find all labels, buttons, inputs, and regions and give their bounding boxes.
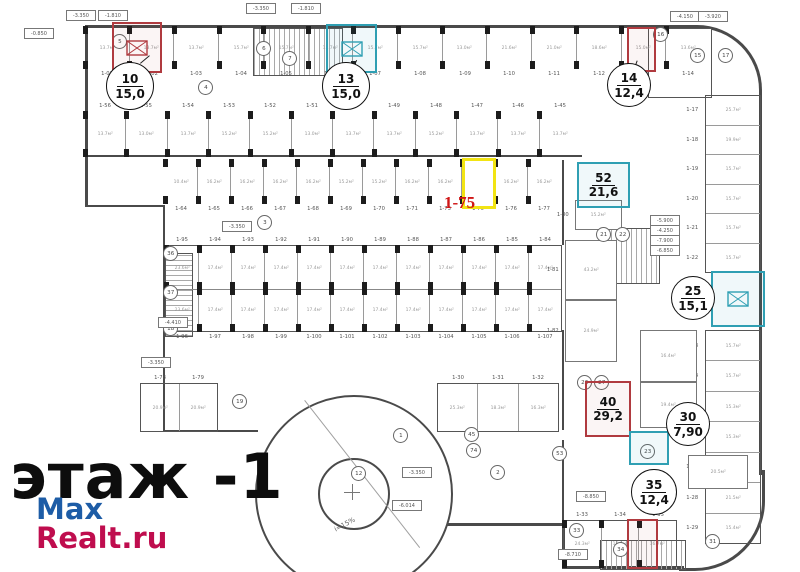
wall-mid-vert-2 xyxy=(562,330,564,430)
ref-circle: 53 xyxy=(552,446,567,461)
stall-area: 13.0м² xyxy=(139,132,154,137)
stall-area: 23.6м² xyxy=(174,307,189,312)
parking-stall: 20.9м²1-78 xyxy=(141,384,179,431)
stall-number: 1-51 xyxy=(306,103,318,109)
ref-circle: 37 xyxy=(163,285,178,300)
parking-stall: 16.3м²1-32 xyxy=(518,384,558,431)
stall-number: 1-91 xyxy=(308,237,320,243)
stall-area: 25.7м² xyxy=(725,108,740,113)
stall-row-top-a: 13.7м²1-0113.7м²1-0213.7м²1-0315.7м²1-04… xyxy=(85,27,710,68)
elevator-icon xyxy=(126,40,148,56)
stall-area: 13.7м² xyxy=(387,132,402,137)
parking-stall: 17.4м²1-91 xyxy=(297,246,330,289)
parking-stall: 13.7м²1-49 xyxy=(373,112,414,156)
parking-stall: 18.3м²1-31 xyxy=(477,384,517,431)
level-marker: -1.810 xyxy=(98,10,128,21)
stall-area: 16.3м² xyxy=(531,405,546,410)
stall-number: 1-94 xyxy=(209,237,221,243)
ref-circle-number: 22 xyxy=(619,231,626,237)
unit-area: 29,2 xyxy=(593,410,623,423)
room-number: 1-82 xyxy=(547,328,559,334)
stall-number: 1-103 xyxy=(405,334,420,340)
room-area: 20.5м² xyxy=(710,470,725,475)
stall-area: 15.7м² xyxy=(725,374,740,379)
parking-stall: 13.7м²1-50 xyxy=(332,112,373,156)
stall-area: 17.4м² xyxy=(207,307,222,312)
stall-number: 1-46 xyxy=(513,103,525,109)
stall-area: 13.7м² xyxy=(98,132,113,137)
unit-badge-35: 35 12,4 xyxy=(631,469,677,515)
unit-area: 21,6 xyxy=(589,186,619,199)
level-marker: -4.150 xyxy=(670,11,700,22)
ref-circle-number: 74 xyxy=(470,447,477,453)
stall-number: 1-33 xyxy=(576,512,588,518)
stall-number: 1-86 xyxy=(473,237,485,243)
ref-circle-number: 7 xyxy=(288,55,292,61)
stall-area: 21.6м² xyxy=(502,45,517,50)
ref-circle: 15 xyxy=(690,48,705,63)
watermark-line2: Realt.ru xyxy=(36,524,167,553)
stall-number: 1-52 xyxy=(265,103,277,109)
parking-stall: 21.6м²1-10 xyxy=(486,27,531,68)
stall-area: 20.9м² xyxy=(152,405,167,410)
stall-number: 1-53 xyxy=(223,103,235,109)
stall-number: 1-03 xyxy=(190,71,202,77)
stall-number: 1-102 xyxy=(372,334,387,340)
stall-number: 1-87 xyxy=(440,237,452,243)
stall-number: 1-100 xyxy=(306,334,321,340)
parking-stall: 15.7м²1-23 xyxy=(706,331,760,360)
ref-circle: 31 xyxy=(705,534,720,549)
stall-area: 17.4м² xyxy=(273,265,288,270)
room: 16.4м² xyxy=(640,330,697,382)
stall-area: 21.0м² xyxy=(546,45,561,50)
stall-number: 1-34 xyxy=(614,512,626,518)
badge-number: 25 xyxy=(681,285,704,299)
ref-circle-number: 17 xyxy=(722,52,729,58)
stall-number: 1-65 xyxy=(208,206,220,212)
parking-stall: 13.7м²1-45 xyxy=(539,112,580,156)
parking-stall: 16.2м²1-68 xyxy=(296,160,329,203)
badge-area: 15,0 xyxy=(331,87,361,100)
ref-circle: 1 xyxy=(393,428,408,443)
stall-area: 17.4м² xyxy=(372,307,387,312)
stall-area: 15.2м² xyxy=(263,132,278,137)
ref-circle: 7 xyxy=(282,51,297,66)
stall-area: 17.4м² xyxy=(438,265,453,270)
ref-circle-number: 36 xyxy=(167,250,174,256)
stall-area: 16.2м² xyxy=(305,179,320,184)
parking-stall: 17.4м²1-94 xyxy=(198,246,231,289)
stall-number: 1-76 xyxy=(505,206,517,212)
parking-stall: 15.7м²1-21 xyxy=(706,213,760,243)
parking-stall: 15.2м²1-69 xyxy=(329,160,362,203)
parking-stall: 17.4м²1-90 xyxy=(330,246,363,289)
unit-badge-30: 30 7,90 xyxy=(666,402,710,446)
stall-area: 15.3м² xyxy=(725,434,740,439)
ref-circle-number: 19 xyxy=(236,398,243,404)
ref-circle: 6 xyxy=(256,41,271,56)
stall-area: 13.7м² xyxy=(346,132,361,137)
level-value: -0.850 xyxy=(31,31,47,37)
stall-area: 15.4м² xyxy=(725,526,740,531)
stall-number: 1-107 xyxy=(537,334,552,340)
stall-area: 15.2м² xyxy=(428,132,443,137)
stall-area: 15.7м² xyxy=(278,45,293,50)
stall-number: 1-19 xyxy=(686,166,698,172)
stall-area: 18.3м² xyxy=(490,405,505,410)
stall-area: 13.0м² xyxy=(457,45,472,50)
parking-stall: 17.4м²1-102 xyxy=(363,288,396,331)
ref-circle: 19 xyxy=(232,394,247,409)
stall-area: 24.3м² xyxy=(575,542,590,547)
stall-area: 15.7м² xyxy=(725,226,740,231)
stall-area: 13.7м² xyxy=(470,132,485,137)
parking-stall: 17.4м²1-97 xyxy=(198,288,231,331)
parking-stall: 17.4м²1-87 xyxy=(429,246,462,289)
stall-number: 1-47 xyxy=(471,103,483,109)
stall-row-top-b: 13.7м²1-5613.0м²1-5513.7м²1-5415.2м²1-53… xyxy=(85,112,580,156)
stall-area: 25.3м² xyxy=(450,405,465,410)
stall-number: 1-31 xyxy=(492,375,504,381)
parking-stall: 15.7м²1-24 xyxy=(706,360,760,390)
stall-number: 1-71 xyxy=(406,206,418,212)
parking-stall: 13.7м²1-56 xyxy=(85,112,125,156)
parking-stall: 13.0м²1-55 xyxy=(125,112,166,156)
parking-stall: 16.2м²1-67 xyxy=(263,160,296,203)
level-value: -4.150 xyxy=(677,14,693,20)
parking-stall: 15.7м²1-19 xyxy=(706,154,760,184)
unit-25 xyxy=(711,271,765,327)
stall-area: 17.4м² xyxy=(372,265,387,270)
stall-column-right-upper: 25.7м²1-1719.9м²1-1815.7м²1-1915.7м²1-20… xyxy=(705,95,761,273)
level-marker: -3.350 xyxy=(222,221,252,232)
unit-35 xyxy=(627,519,658,569)
parking-stall: 13.7м²1-46 xyxy=(497,112,538,156)
stall-area: 17.4м² xyxy=(306,307,321,312)
unit-40-label: 40 29,2 xyxy=(593,396,623,422)
stall-number: 1-49 xyxy=(389,103,401,109)
ref-circle: 17 xyxy=(718,48,733,63)
stall-pair-left-bottom: 20.9м²1-7820.9м²1-79 xyxy=(140,383,218,432)
level-value: -3.350 xyxy=(229,224,245,230)
stall-number: 1-05 xyxy=(280,71,292,77)
parking-stall: 15.7м²1-08 xyxy=(397,27,442,68)
badge-area: 7,90 xyxy=(673,425,703,438)
stall-number: 1-70 xyxy=(373,206,385,212)
wall-left-step xyxy=(85,205,165,207)
ref-circle: 2 xyxy=(490,465,505,480)
unit-52: 52 21,6 xyxy=(577,162,630,208)
level-marker: -8.710 xyxy=(558,549,588,560)
level-marker: -3.350 xyxy=(66,10,96,21)
wall-mid-vert-1 xyxy=(562,160,564,245)
room-area: 24.9м² xyxy=(583,329,598,334)
unit-badge-13: 13 15,0 xyxy=(322,62,370,110)
stall-number: 1-78 xyxy=(154,375,166,381)
unit-badge-14: 14 12,4 xyxy=(607,63,651,107)
parking-stall: 19.9м²1-18 xyxy=(706,125,760,155)
parking-stall: 17.4м²1-101 xyxy=(330,288,363,331)
stall-number: 1-84 xyxy=(539,237,551,243)
stall-number: 1-104 xyxy=(438,334,453,340)
level-value: -3.350 xyxy=(253,6,269,12)
level-value: -6.014 xyxy=(399,503,415,509)
ref-circle: 22 xyxy=(615,227,630,242)
room: 20.5м² xyxy=(688,455,748,489)
level-marker: -6.850 xyxy=(650,245,680,256)
stall-area: 15.2м² xyxy=(222,132,237,137)
ref-circle: 36 xyxy=(163,246,178,261)
unit-number: 40 xyxy=(597,396,620,410)
stall-area: 15.7м² xyxy=(725,255,740,260)
parking-stall: 16.2м²1-65 xyxy=(197,160,230,203)
parking-stall: 17.4м²1-88 xyxy=(396,246,429,289)
unit-30 xyxy=(629,431,669,465)
level-marker: -0.850 xyxy=(24,28,54,39)
badge-number: 13 xyxy=(333,73,358,87)
stall-area: 17.4м² xyxy=(537,307,552,312)
level-value: -3.920 xyxy=(705,14,721,20)
parking-stall: 17.4м²1-107 xyxy=(528,288,561,331)
stall-area: 17.4м² xyxy=(273,307,288,312)
stall-area: 17.4м² xyxy=(471,307,486,312)
stall-number: 1-22 xyxy=(686,255,698,261)
stall-number: 1-28 xyxy=(686,495,698,501)
stall-area: 13.7м² xyxy=(511,132,526,137)
badge-area: 15,0 xyxy=(115,87,145,100)
stall-number: 1-18 xyxy=(686,137,698,143)
stall-number: 1-32 xyxy=(532,375,544,381)
stall-row-central-bottom: 23.6м²1-9617.4м²1-9717.4м²1-9817.4м²1-99… xyxy=(165,288,562,332)
stall-area: 20.9м² xyxy=(191,405,206,410)
stall-number: 1-97 xyxy=(209,334,221,340)
stall-area: 17.4м² xyxy=(405,307,420,312)
ref-circle: 34 xyxy=(613,542,628,557)
stall-area: 17.4м² xyxy=(240,307,255,312)
stall-area: 15.2м² xyxy=(371,179,386,184)
stall-number: 1-12 xyxy=(593,71,605,77)
stall-area: 13.0м² xyxy=(304,132,319,137)
parking-stall: 13.6м²1-14 xyxy=(665,27,710,68)
ref-circle-number: 16 xyxy=(657,31,664,37)
level-value: -4.250 xyxy=(657,228,673,234)
parking-stall: 17.4м²1-89 xyxy=(363,246,396,289)
stall-number: 1-56 xyxy=(99,103,111,109)
unit-badge-10: 10 15,0 xyxy=(106,62,154,110)
level-value: -4.410 xyxy=(165,320,181,326)
stall-number: 1-95 xyxy=(176,237,188,243)
parking-stall: 16.2м²1-66 xyxy=(230,160,263,203)
room-number: 1-81 xyxy=(547,267,559,273)
parking-stall: 13.7м²1-03 xyxy=(173,27,218,68)
stall-area: 21.5м² xyxy=(725,495,740,500)
stall-number: 1-88 xyxy=(407,237,419,243)
level-marker: -1.810 xyxy=(291,3,321,14)
badge-number: 14 xyxy=(617,72,640,86)
parking-stall: 15.3м²1-26 xyxy=(706,421,760,451)
watermark-line1: Max xyxy=(36,495,167,524)
parking-stall: 21.0м²1-11 xyxy=(531,27,576,68)
ref-circle-number: 31 xyxy=(709,538,716,544)
parking-stall: 17.4м²1-93 xyxy=(231,246,264,289)
parking-stall: 17.4м²1-85 xyxy=(495,246,528,289)
parking-stall: 15.2м²1-48 xyxy=(415,112,456,156)
parking-stall: 10.4м²1-64 xyxy=(165,160,197,203)
parking-stall: 20.9м²1-79 xyxy=(179,384,218,431)
parking-stall: 17.4м²1-104 xyxy=(429,288,462,331)
stall-number: 1-90 xyxy=(341,237,353,243)
badge-area: 12,4 xyxy=(639,493,669,506)
stall-number: 1-79 xyxy=(192,375,204,381)
stall-number: 1-67 xyxy=(274,206,286,212)
stall-number: 1-85 xyxy=(506,237,518,243)
stall-area: 16.2м² xyxy=(503,179,518,184)
stall-number: 1-77 xyxy=(538,206,550,212)
ref-circle-number: 1 xyxy=(399,432,403,438)
unit-52-label: 52 21,6 xyxy=(589,172,619,198)
stall-number: 1-09 xyxy=(459,71,471,77)
watermark[interactable]: Max Realt.ru xyxy=(36,495,167,553)
parking-stall: 16.2м²1-77 xyxy=(527,160,560,203)
floor-plan: 13.7м²1-0113.7м²1-0213.7м²1-0315.7м²1-04… xyxy=(0,0,800,572)
stall-area: 17.4м² xyxy=(339,265,354,270)
stall-number: 1-45 xyxy=(554,103,566,109)
ref-circle: 4 xyxy=(198,80,213,95)
wall-bottom-1 xyxy=(437,523,565,526)
stall-area: 17.4м² xyxy=(207,265,222,270)
parking-stall: 18.6м²1-12 xyxy=(576,27,621,68)
parking-stall: 17.4м²1-105 xyxy=(462,288,495,331)
parking-stall: 17.4м²1-98 xyxy=(231,288,264,331)
parking-stall: 17.4м²1-103 xyxy=(396,288,429,331)
room: 24.9м² 1-82 xyxy=(565,300,617,362)
badge-number: 35 xyxy=(642,479,666,493)
stall-area: 15.7м² xyxy=(725,167,740,172)
stall-column-right-lower: 15.7м²1-2315.7м²1-2415.3м²1-2515.3м²1-26… xyxy=(705,330,761,544)
stall-area: 17.4м² xyxy=(471,265,486,270)
stall-number: 1-11 xyxy=(548,71,560,77)
stall-area: 16.2м² xyxy=(206,179,221,184)
parking-stall: 15.2м²1-53 xyxy=(208,112,249,156)
stall-area: 17.4м² xyxy=(240,265,255,270)
level-value: -1.810 xyxy=(105,13,121,19)
stall-area: 15.3м² xyxy=(725,404,740,409)
stall-number: 1-89 xyxy=(374,237,386,243)
stall-area: 15.7м² xyxy=(725,343,740,348)
stall-number: 1-101 xyxy=(339,334,354,340)
ref-circle-number: 45 xyxy=(468,431,475,437)
stall-number: 1-96 xyxy=(176,334,188,340)
stall-number: 1-93 xyxy=(242,237,254,243)
stall-number: 1-08 xyxy=(414,71,426,77)
parking-stall: 15.2м²1-52 xyxy=(249,112,290,156)
stall-area: 15.7м² xyxy=(725,196,740,201)
room-area: 43.2м² xyxy=(583,268,598,273)
parking-stall: 17.4м²1-106 xyxy=(495,288,528,331)
stall-area: 16.2м² xyxy=(239,179,254,184)
stall-area: 15.7м² xyxy=(412,45,427,50)
ref-circle-number: 4 xyxy=(204,84,208,90)
stall-area: 15.7м² xyxy=(233,45,248,50)
room-area: 15.2м² xyxy=(591,213,606,218)
stall-area: 17.4м² xyxy=(438,307,453,312)
unit-number: 52 xyxy=(592,172,615,186)
level-value: -8.850 xyxy=(583,494,599,500)
stall-number: 1-29 xyxy=(686,525,698,531)
stall-row-central-top: 23.6м²1-9517.4м²1-9417.4м²1-9317.4м²1-92… xyxy=(165,245,562,290)
stall-number: 1-48 xyxy=(430,103,442,109)
level-marker: -6.014 xyxy=(392,500,422,511)
ref-circle-number: 15 xyxy=(694,52,701,58)
stall-number: 1-105 xyxy=(471,334,486,340)
parking-stall: 17.4м²1-99 xyxy=(264,288,297,331)
parking-stall: 15.7м²1-20 xyxy=(706,184,760,214)
stall-number: 1-66 xyxy=(241,206,253,212)
ref-circle-number: 12 xyxy=(355,470,362,476)
stall-row-circle-top: 25.3м²1-3018.3м²1-3116.3м²1-32 xyxy=(437,383,559,432)
stall-area: 17.4м² xyxy=(405,265,420,270)
elevator-icon xyxy=(727,291,749,307)
parking-stall: 13.7м²1-47 xyxy=(456,112,497,156)
stall-area: 10.4м² xyxy=(173,179,188,184)
room-area: 16.4м² xyxy=(661,354,676,359)
parking-stall: 15.7м²1-22 xyxy=(706,243,760,273)
stall-number: 1-64 xyxy=(175,206,187,212)
parking-stall: 17.4м²1-100 xyxy=(297,288,330,331)
stall-area: 18.6м² xyxy=(591,45,606,50)
unit-badge-25: 25 15,1 xyxy=(671,276,715,320)
level-value: -3.350 xyxy=(73,13,89,19)
ref-circle-number: 37 xyxy=(167,289,174,295)
stall-number: 1-69 xyxy=(340,206,352,212)
level-value: -3.350 xyxy=(148,360,164,366)
stall-area: 23.6м² xyxy=(174,265,189,270)
stall-area: 17.4м² xyxy=(339,307,354,312)
stall-row-c: 10.4м²1-6416.2м²1-6516.2м²1-6616.2м²1-67… xyxy=(165,160,560,203)
parking-stall: 16.2м²1-76 xyxy=(494,160,527,203)
stall-area: 13.7м² xyxy=(552,132,567,137)
stall-number: 1-30 xyxy=(452,375,464,381)
level-value: -5.900 xyxy=(657,218,673,224)
level-value: -7.900 xyxy=(657,238,673,244)
parking-stall: 13.0м²1-09 xyxy=(442,27,487,68)
parking-stall: 17.4м²1-86 xyxy=(462,246,495,289)
parking-stall: 13.0м²1-51 xyxy=(291,112,332,156)
stall-area: 13.7м² xyxy=(189,45,204,50)
stall-area: 17.4м² xyxy=(306,265,321,270)
stall-area: 15.2м² xyxy=(338,179,353,184)
parking-stall: 25.3м²1-30 xyxy=(438,384,477,431)
parking-stall: 17.4м²1-92 xyxy=(264,246,297,289)
level-value: -3.350 xyxy=(409,470,425,476)
stall-number: 1-21 xyxy=(686,225,698,231)
ref-circle-number: 33 xyxy=(573,527,580,533)
ref-circle: 33 xyxy=(569,523,584,538)
stall-area: 17.4м² xyxy=(504,307,519,312)
stall-number: 1-04 xyxy=(235,71,247,77)
parking-stall: 16.2м²1-71 xyxy=(395,160,428,203)
ref-circle-number: 6 xyxy=(262,45,266,51)
level-marker: -3.350 xyxy=(246,3,276,14)
stall-number: 1-98 xyxy=(242,334,254,340)
level-marker: -4.410 xyxy=(158,317,188,328)
stall-area: 16.2м² xyxy=(272,179,287,184)
badge-number: 30 xyxy=(676,411,699,425)
ref-circle: 45 xyxy=(464,427,479,442)
level-marker: -3.920 xyxy=(698,11,728,22)
badge-area: 15,1 xyxy=(678,299,708,312)
